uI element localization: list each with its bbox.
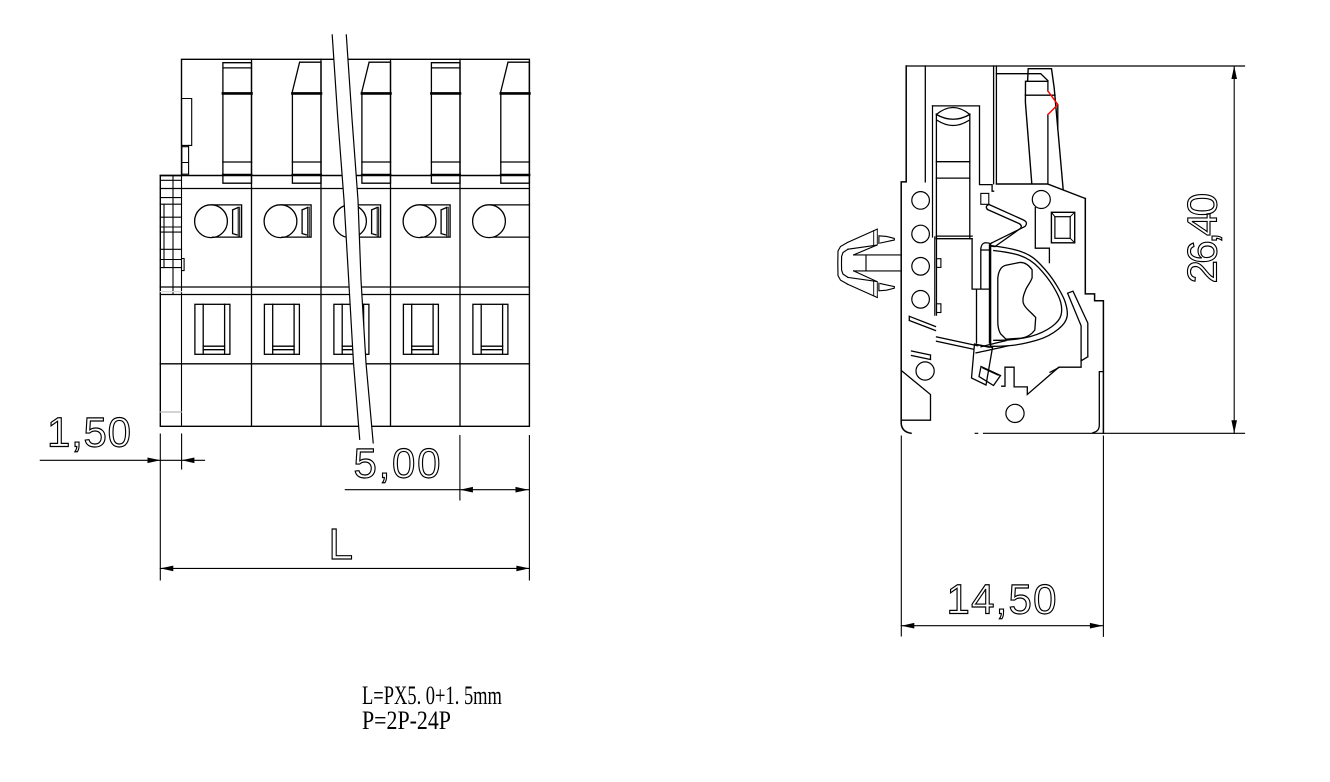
svg-text:14,50: 14,50 [947,576,1057,623]
svg-text:1,50: 1,50 [47,409,131,456]
svg-text:5,00: 5,00 [354,439,441,486]
svg-text:L=PX5. 0+1. 5mm: L=PX5. 0+1. 5mm [362,681,502,710]
svg-text:P=2P-24P: P=2P-24P [362,707,451,735]
svg-text:26,40: 26,40 [1179,193,1226,284]
svg-text:L: L [329,520,353,569]
